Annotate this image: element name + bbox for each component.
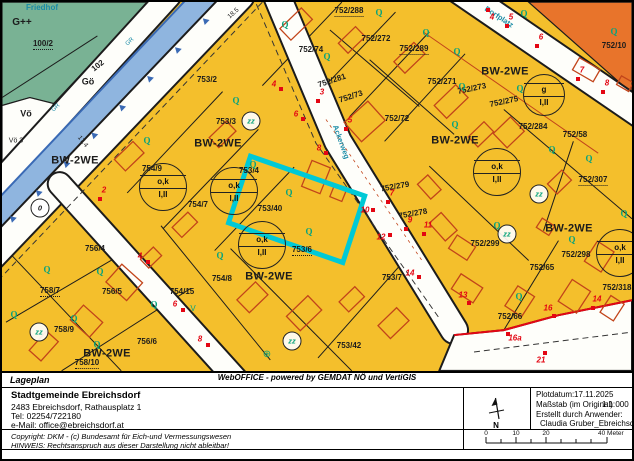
parcel-label: 752/73 xyxy=(338,89,364,104)
chord-line xyxy=(211,179,257,180)
zoning-label: BW-2WE xyxy=(51,156,98,167)
map-label: 17.4 xyxy=(76,135,89,149)
building-class-text: o,k xyxy=(597,243,632,253)
zoning-label: BW-2WE xyxy=(481,67,528,78)
map-label: Gö xyxy=(82,78,95,87)
parcel-label: 752/72 xyxy=(385,115,409,123)
boundary-point-number: 8 xyxy=(198,335,202,344)
parcel-label: 753/2 xyxy=(197,76,217,84)
boundary-point-number: 16a xyxy=(508,334,521,343)
boundary-point xyxy=(388,233,392,237)
boundary-point xyxy=(279,87,283,91)
building-class-text: o,k xyxy=(474,162,520,172)
zoning-label: BW-2WE xyxy=(545,224,592,235)
map-label: V xyxy=(190,305,195,313)
app-credit: WebOFFICE - powered by GEMDAT NÖ und Ver… xyxy=(2,373,632,382)
vegetation-symbol: Q xyxy=(93,341,100,350)
building-class-symbol: o,kI,II xyxy=(139,163,187,211)
boundary-point xyxy=(422,232,426,236)
chord-line xyxy=(239,246,285,247)
parcel-label: 752/298 xyxy=(562,251,591,259)
parcel-label: 100/2 xyxy=(33,40,53,50)
boundary-point xyxy=(324,151,328,155)
parcel-label: 752/10 xyxy=(602,42,626,50)
vegetation-symbol: Q xyxy=(422,29,429,38)
plot-scale: 1:1 000 xyxy=(602,400,629,409)
parcel-label: 758/10 xyxy=(75,359,99,369)
zoning-label: BW-2WE xyxy=(245,272,292,283)
parcel-label: 752/278 xyxy=(398,208,428,221)
parcel-label: 753/7 xyxy=(382,274,402,282)
zoning-label: BW-2WE xyxy=(83,349,130,360)
building-class-symbol: o,kI,II xyxy=(473,148,521,196)
boundary-point xyxy=(543,351,547,355)
parcel-label: 753/42 xyxy=(337,342,361,350)
parcel-label: 754/7 xyxy=(188,201,208,209)
chord-line xyxy=(140,175,186,176)
map-label: ⊕ xyxy=(263,350,271,360)
chord-line xyxy=(474,173,520,174)
vegetation-symbol: Q xyxy=(515,293,522,302)
boundary-point-number: 7 xyxy=(580,66,584,75)
parcel-label: 756/5 xyxy=(102,288,122,296)
parcel-label: 752/74 xyxy=(299,46,323,54)
vegetation-symbol: Q xyxy=(70,315,77,324)
zoning-label: BW-2WE xyxy=(194,139,241,150)
building-class-symbol: gI,II xyxy=(523,74,565,116)
boundary-point-number: 7 xyxy=(390,189,394,198)
plot-creator-label: Erstellt durch Anwender: xyxy=(536,410,623,419)
vegetation-symbol: Q xyxy=(458,83,465,92)
boundary-point-number: 4 xyxy=(272,80,276,89)
north-arrow-icon: N xyxy=(480,389,516,431)
vegetation-symbol: Q xyxy=(143,137,150,146)
parcel-label: 752/307 xyxy=(579,176,608,186)
boundary-point-number: 6 xyxy=(539,33,543,42)
map-label: 18.5 xyxy=(227,7,241,20)
boundary-point xyxy=(486,8,490,12)
chord-line xyxy=(474,160,520,161)
boundary-point xyxy=(467,301,471,305)
building-class-symbol: o,kI,II xyxy=(596,229,632,277)
boundary-point xyxy=(576,77,580,81)
small-circle-symbol: zz xyxy=(283,332,302,351)
scale-tick-10: 10 xyxy=(512,430,520,437)
vegetation-symbol: Q xyxy=(150,301,157,310)
map-label-overlay: 100/2102753/2753/3753/4753/40753/6753/77… xyxy=(2,2,632,371)
chord-line xyxy=(597,254,632,255)
building-class-symbol: o,kI,II xyxy=(238,221,286,269)
parcel-label: 752/318 xyxy=(603,284,632,292)
boundary-point xyxy=(601,90,605,94)
parcel-label: 752/275 xyxy=(489,95,519,109)
boundary-point-number: 14 xyxy=(593,295,602,304)
parcel-label: 754/15 xyxy=(170,288,194,296)
boundary-point-number: 4 xyxy=(490,13,494,22)
boundary-point xyxy=(505,24,509,28)
scale-tick-40: 40 Meter xyxy=(598,430,624,437)
building-class-text: I,II xyxy=(140,190,186,200)
boundary-point xyxy=(591,306,595,310)
parcel-label: 752/271 xyxy=(428,78,457,86)
parcel-label: 752/58 xyxy=(563,131,587,139)
boundary-point-number: 14 xyxy=(406,269,415,278)
vegetation-symbol: Q xyxy=(620,210,627,219)
boundary-point-number: 4 xyxy=(138,252,142,261)
plot-date: 17.11.2025 xyxy=(574,390,613,399)
vegetation-symbol: Q xyxy=(568,236,575,245)
vegetation-symbol: Q xyxy=(585,155,592,164)
scale-tick-0: 0 xyxy=(484,430,488,437)
vegetation-symbol: Q xyxy=(281,21,288,30)
boundary-point-number: 8 xyxy=(605,79,609,88)
boundary-point xyxy=(316,99,320,103)
building-class-text: o,k xyxy=(211,181,257,191)
parcel-label: 102 xyxy=(90,59,105,74)
map-label: Vö 3 xyxy=(9,138,23,145)
municipality-name: Stadtgemeinde Ebreichsdorf xyxy=(11,390,140,401)
small-circle-symbol: zz xyxy=(498,225,517,244)
boundary-point-number: 11 xyxy=(424,221,432,230)
small-circle-symbol: zz xyxy=(30,323,49,342)
building-class-text: g xyxy=(524,85,564,95)
plot-footer: Lageplan Stadtgemeinde Ebreichsdorf 2483… xyxy=(2,373,632,459)
parcel-label: 756/6 xyxy=(137,338,157,346)
vegetation-symbol: Q xyxy=(43,266,50,275)
building-class-text: I,II xyxy=(211,194,257,204)
boundary-point-number: 21 xyxy=(537,356,546,365)
boundary-point-number: 5 xyxy=(348,116,352,125)
parcel-label: 753/6 xyxy=(292,246,312,256)
vegetation-symbol: Q xyxy=(610,28,617,37)
boundary-point-number: 2 xyxy=(102,186,106,195)
divider xyxy=(2,449,632,450)
building-class-text: o,k xyxy=(140,177,186,187)
vegetation-symbol: Q xyxy=(10,311,17,320)
divider xyxy=(463,387,464,449)
boundary-point-number: 16 xyxy=(544,304,553,313)
boundary-point xyxy=(417,275,421,279)
boundary-point-number: 10 xyxy=(361,206,370,215)
divider xyxy=(530,387,531,429)
vegetation-symbol: Q xyxy=(451,121,458,130)
boundary-point xyxy=(386,200,390,204)
lageplan-page: 100/2102753/2753/3753/4753/40753/6753/77… xyxy=(0,0,634,461)
chord-line xyxy=(239,233,285,234)
divider xyxy=(2,387,632,388)
boundary-point-number: 8 xyxy=(317,144,321,153)
parcel-label: 753/40 xyxy=(258,205,282,213)
map-viewport: 100/2102753/2753/3753/4753/40753/6753/77… xyxy=(2,2,632,373)
boundary-point xyxy=(181,308,185,312)
parcel-label: 752/284 xyxy=(519,123,548,131)
small-circle-symbol: 0 xyxy=(31,199,50,218)
plot-date-label: Plotdatum: xyxy=(536,390,574,399)
boundary-point xyxy=(535,44,539,48)
boundary-point xyxy=(404,227,408,231)
parcel-label: 752/299 xyxy=(471,240,500,248)
boundary-point xyxy=(371,208,375,212)
map-label: G++ xyxy=(12,18,31,28)
map-label: Vö xyxy=(20,110,32,119)
parcel-label: 756/4 xyxy=(85,245,105,253)
parcel-label: 752/289 xyxy=(400,45,429,55)
chord-line xyxy=(211,192,257,193)
building-class-text: I,II xyxy=(597,256,632,266)
building-class-symbol: o,kI,II xyxy=(210,167,258,215)
chord-line xyxy=(140,188,186,189)
parcel-label: 754/8 xyxy=(212,275,232,283)
chord-line xyxy=(597,241,632,242)
plot-title: Lageplan xyxy=(10,375,50,385)
scale-bar: 0 10 20 40 Meter xyxy=(480,430,632,448)
boundary-point-number: 5 xyxy=(509,13,513,22)
parcel-label: 758/9 xyxy=(54,326,74,334)
map-label: GR xyxy=(51,103,62,113)
parcel-label: 753/3 xyxy=(216,118,236,126)
parcel-label: 752/66 xyxy=(498,313,522,321)
boundary-point xyxy=(206,343,210,347)
boundary-point xyxy=(98,197,102,201)
vegetation-symbol: Q xyxy=(96,268,103,277)
parcel-label: 752/65 xyxy=(530,264,554,272)
building-class-text: I,II xyxy=(474,175,520,185)
small-circle-symbol: zz xyxy=(242,112,261,131)
small-circle-symbol: zz xyxy=(530,185,549,204)
vegetation-symbol: Q xyxy=(323,53,330,62)
boundary-point-number: 12 xyxy=(377,233,386,242)
vegetation-symbol: Q xyxy=(375,9,382,18)
parcel-label: 758/7 xyxy=(40,287,60,297)
map-label: Friedhof xyxy=(26,4,58,12)
boundary-point xyxy=(552,314,556,318)
scale-tick-20: 20 xyxy=(542,430,550,437)
vegetation-symbol: Q xyxy=(305,228,312,237)
boundary-point-number: 9 xyxy=(408,216,412,225)
boundary-point-number: 6 xyxy=(173,300,177,309)
boundary-point xyxy=(301,117,305,121)
copyright-text: Copyright: DKM - (c) Bundesamt für Eich-… xyxy=(11,432,231,441)
chord-line xyxy=(524,83,564,84)
vegetation-symbol: Q xyxy=(232,97,239,106)
zoning-label: BW-2WE xyxy=(431,136,478,147)
boundary-point xyxy=(146,260,150,264)
building-class-text: I,II xyxy=(239,248,285,258)
vegetation-symbol: Q xyxy=(453,48,460,57)
parcel-label: 752/288 xyxy=(335,7,364,17)
vegetation-symbol: Q xyxy=(520,10,527,19)
building-class-text: I,II xyxy=(524,98,564,108)
boundary-point-number: 3 xyxy=(320,88,324,97)
parcel-label: 752/279 xyxy=(380,181,410,194)
parcel-label: 752/272 xyxy=(362,35,391,43)
vegetation-symbol: Q xyxy=(548,146,555,155)
boundary-point-number: 6 xyxy=(294,110,298,119)
vegetation-symbol: Q xyxy=(285,189,292,198)
building-class-text: o,k xyxy=(239,235,285,245)
map-label: GR xyxy=(125,37,136,47)
chord-line xyxy=(524,96,564,97)
vegetation-symbol: Q xyxy=(249,161,256,170)
plot-creator: Claudia Gruber_Ebreichsdorf xyxy=(540,419,634,428)
vegetation-symbol: Q xyxy=(216,252,223,261)
boundary-point-number: 13 xyxy=(459,291,468,300)
boundary-point xyxy=(344,127,348,131)
